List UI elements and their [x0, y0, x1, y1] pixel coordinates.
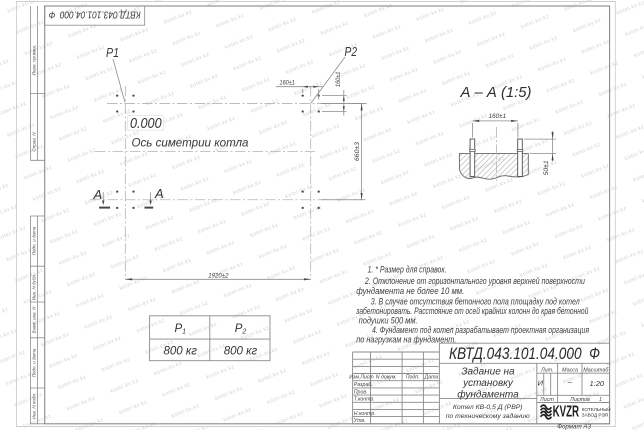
svg-text:Справ. N: Справ. N — [32, 132, 37, 152]
svg-text:1920±2: 1920±2 — [208, 272, 229, 279]
svg-text:Пров.: Пров. — [354, 389, 368, 395]
svg-text:Масштаб: Масштаб — [583, 368, 609, 374]
svg-text:фундамента: фундамента — [457, 388, 519, 400]
svg-text:0.000: 0.000 — [130, 116, 162, 132]
svg-text:Листов: Листов — [569, 397, 590, 403]
svg-text:P2: P2 — [345, 45, 358, 59]
svg-text:А – А (1:5): А – А (1:5) — [459, 85, 531, 101]
svg-text:И: И — [538, 378, 544, 387]
svg-text:1:20: 1:20 — [589, 379, 604, 388]
svg-text:Изм.Лист: Изм.Лист — [349, 375, 374, 381]
svg-text:Перв. примен.: Перв. примен. — [32, 45, 37, 76]
svg-text:1: 1 — [599, 397, 602, 403]
svg-text:установку: установку — [462, 378, 514, 389]
svg-text:–: – — [567, 378, 573, 387]
svg-text:Лист: Лист — [539, 397, 554, 403]
svg-text:2. Отклонение от горизонтально: 2. Отклонение от горизонтального уровня … — [364, 276, 585, 286]
svg-text:Ось симетрии котла: Ось симетрии котла — [132, 135, 249, 149]
svg-text:забетонировать. Расстояние от: забетонировать. Расстояние от осей крайн… — [356, 306, 589, 316]
svg-text:Взам. инв. N: Взам. инв. N — [32, 306, 37, 333]
svg-text:А: А — [154, 186, 164, 201]
svg-text:Подп.: Подп. — [406, 375, 420, 381]
svg-text:1. * Размер для справок.: 1. * Размер для справок. — [368, 264, 447, 274]
svg-text:ЗАВОД РЭП: ЗАВОД РЭП — [582, 413, 608, 418]
svg-text:660±3: 660±3 — [354, 142, 361, 161]
svg-text:КОТЕЛЬНЫЙ: КОТЕЛЬНЫЙ — [582, 405, 611, 412]
svg-text:160±1: 160±1 — [489, 113, 507, 120]
svg-text:Н.контр.: Н.контр. — [354, 411, 376, 417]
svg-text:P1: P1 — [106, 46, 119, 60]
svg-text:КВТД.043.101.04.000 Ф: КВТД.043.101.04.000 Ф — [49, 9, 141, 21]
svg-text:800 кг: 800 кг — [224, 345, 258, 357]
svg-text:800 кг: 800 кг — [164, 345, 198, 357]
svg-text:KVZR: KVZR — [553, 404, 580, 421]
svg-text:Подп. и дата: Подп. и дата — [32, 348, 37, 377]
svg-text:Формат А3: Формат А3 — [557, 423, 591, 430]
svg-text:3. В случае отсутствия бетонно: 3. В случае отсутствия бетонного пола пл… — [371, 296, 580, 306]
svg-text:по техническому заданию: по техническому заданию — [446, 412, 530, 420]
svg-text:А: А — [93, 187, 103, 202]
svg-text:Дата: Дата — [424, 375, 439, 381]
svg-text:Задание на: Задание на — [461, 366, 515, 377]
svg-text:Лит.: Лит. — [540, 368, 554, 374]
svg-text:160±1: 160±1 — [280, 79, 296, 86]
svg-text:Т.контр.: Т.контр. — [354, 397, 375, 403]
svg-text:Разраб.: Разраб. — [354, 382, 373, 388]
svg-text:КВТД.043.101.04.000 Ф: КВТД.043.101.04.000 Ф — [449, 345, 600, 363]
svg-text:подушки 500 мм.: подушки 500 мм. — [359, 316, 418, 326]
svg-text:N докум.: N докум. — [376, 375, 397, 381]
svg-text:фундамента не более 10 мм.: фундамента не более 10 мм. — [356, 286, 464, 296]
svg-text:Инв. N подл.: Инв. N подл. — [32, 393, 37, 420]
svg-text:Котел КВ-0,5 Д (РВР): Котел КВ-0,5 Д (РВР) — [453, 404, 523, 411]
svg-text:Подп. и дата: Подп. и дата — [32, 226, 37, 255]
svg-text:50±1: 50±1 — [543, 160, 550, 175]
svg-text:Инв. N дубл.: Инв. N дубл. — [32, 274, 37, 301]
svg-text:160±1: 160±1 — [335, 71, 342, 87]
svg-text:Масса: Масса — [562, 368, 578, 374]
svg-text:Утв.: Утв. — [354, 418, 366, 424]
